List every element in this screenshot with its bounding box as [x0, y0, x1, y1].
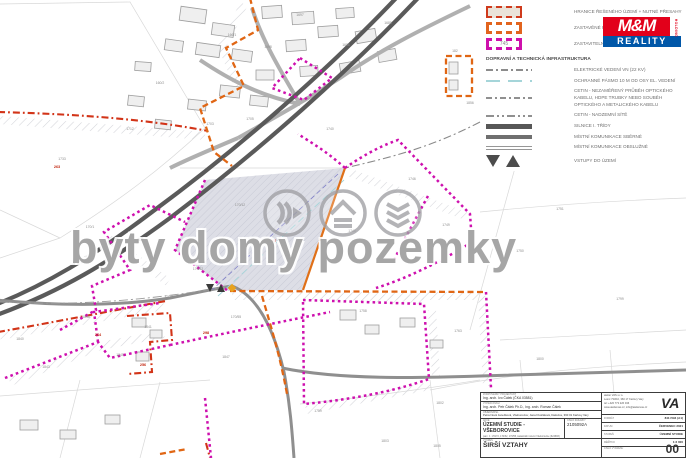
legend-label: ELEKTRICKÉ VEDENÍ VN (22 kV) — [574, 67, 684, 74]
parcel-number-label: 1763 — [454, 329, 462, 333]
parcel-number-label: 1846 — [82, 315, 90, 319]
triangle-up-icon — [506, 155, 520, 167]
parcel-number-label: 170/72 — [165, 295, 175, 299]
legend-label: CETIN - NADZEMNÍ SÍTĚ — [574, 112, 684, 119]
field-label: FORMÁT — [604, 417, 614, 420]
mm-reality-logo: M&M HOLDING REALITY — [603, 17, 681, 47]
zone-code-label: 264 — [95, 333, 102, 337]
project-title-cell: AKCE ÚZEMNÍ STUDIE - VŠEBOROVICE parc. č… — [481, 419, 565, 438]
parcel-number-label: 1685 — [384, 21, 392, 25]
watermark-text: byty domy pozemky — [70, 222, 517, 274]
boundary-swatch-icon — [486, 6, 522, 18]
field-label: DATUM — [604, 425, 612, 428]
service-road-swatch-icon — [486, 146, 532, 150]
legend-item-service-road: MÍSTNÍ KOMUNIKACE OBSLUŽNÉ — [486, 144, 684, 151]
parcel-number-label: 1758 — [359, 309, 367, 313]
parcel-number-label: 1843 — [42, 365, 50, 369]
sheet-number-cell: ČÍSLO VÝKRESU 00 — [602, 447, 685, 457]
legend-label: VSTUPY DO ÚZEMÍ — [574, 158, 684, 165]
company-logo: VA — [661, 393, 685, 414]
zone-code-label: 263 — [54, 165, 60, 169]
project-row: AKCE ÚZEMNÍ STUDIE - VŠEBOROVICE parc. č… — [481, 419, 601, 439]
authors-field: VYPRACOVALI Ing. arch. Petr Čálek Ph.D.,… — [481, 402, 601, 411]
order-number: 2105092A — [567, 422, 599, 428]
logo-holding-text: HOLDING — [674, 19, 678, 37]
field-value: ČERVENEC 2021 — [659, 425, 683, 429]
drawing-name-cell: VÝKRES ŠIRŠÍ VZTAHY — [481, 439, 601, 457]
legend-label: SILNICE I. TŘÍDY — [574, 123, 684, 130]
parcel-number-label: 1799 — [616, 297, 624, 301]
parcel-number-label: 1847 — [222, 355, 230, 359]
cetin-overhead-swatch-icon — [486, 115, 532, 117]
urban-study-plan-page: { "colors":{"magenta":"#ce10ae","orange"… — [0, 0, 686, 458]
field-label: STUPEŇ — [604, 433, 614, 436]
order-number-cell: ČÍSLO ZAKÁZKY 2105092A — [565, 419, 601, 438]
parcel-number-label: 1802 — [436, 401, 444, 405]
protection-zone-swatch-icon — [486, 80, 532, 82]
parcel-number-label: 1840 — [16, 337, 24, 341]
legend-label: HRANICE ŘEŠENÉHO ÚZEMÍ + NUTNÉ PŘESAHY — [574, 9, 684, 16]
parcel-number-label: 1740 — [326, 127, 334, 131]
legend-item-power-line: ELEKTRICKÉ VEDENÍ VN (22 kV) — [486, 67, 684, 74]
power-line-swatch-icon — [486, 69, 532, 71]
company-info: atelier VAS s.r.o. Lesní 733/10, 360 17 … — [602, 393, 661, 414]
parcel-number-label: 1746 — [408, 177, 416, 181]
legend-label: CETIN - NEZAMĚŘENÝ PRŮBĚH OPTICKÉHO KABE… — [574, 88, 684, 108]
parcel-number-label: 1686 — [342, 43, 350, 47]
parcel-number-label: 170/55 — [231, 315, 241, 319]
legend-item-collector-road: MÍSTNÍ KOMUNIKACE SBĚRNÉ — [486, 134, 684, 141]
legend-section-title: DOPRAVNÍ A TECHNICKÁ INFRASTRUKTURA — [486, 57, 684, 62]
parcel-number-label: 1759 — [314, 409, 322, 413]
company-cell: atelier VAS s.r.o. Lesní 733/10, 360 17 … — [602, 393, 685, 415]
zone-code-label: 298 — [203, 331, 209, 335]
field-value: Ing. arch. Petr Čálek Ph.D., Ing. arch. … — [483, 405, 599, 409]
responsible-designer-field: ZODPOVĚDNÝ PROJEKTANT Ing. arch. Ivo Čál… — [481, 393, 601, 402]
field-label: MĚŘÍTKO — [604, 441, 615, 444]
stage-field: STUPEŇ ÚZEMNÍ STUDIE — [602, 431, 685, 439]
parcel-number-label: 1750 — [516, 249, 524, 253]
parcel-number-label: 1856 — [466, 101, 474, 105]
logo-mm-text: M&M — [603, 17, 670, 36]
field-value: 841×594 (A1) — [665, 417, 683, 421]
title-block-left: ZODPOVĚDNÝ PROJEKTANT Ing. arch. Ivo Čál… — [481, 393, 602, 457]
parcel-number-label: 1705 — [246, 117, 254, 121]
format-field: FORMÁT 841×594 (A1) — [602, 415, 685, 423]
parcel-number-label: 1698 — [264, 45, 272, 49]
entries-swatch-icon — [486, 155, 532, 167]
cetin-cable-swatch-icon — [486, 97, 532, 99]
project-subtitle: parc. č. 170/72, 170/52, 170/55, katastr… — [483, 435, 562, 438]
company-line: www.ateliervas.cz, info@ateliervas.cz — [604, 406, 661, 410]
triangle-down-icon — [486, 155, 500, 167]
parcel-number-label: 1712 — [126, 127, 134, 131]
date-field: DATUM ČERVENEC 2021 — [602, 423, 685, 431]
developable-swatch-icon: 745 — [486, 38, 522, 50]
parcel-number-label: 182 — [452, 49, 458, 53]
parcel-number-label: 1764 — [296, 369, 304, 373]
parcel-number-label: 1841 — [144, 325, 152, 329]
power-line-vn — [345, 122, 480, 168]
project-title: ÚZEMNÍ STUDIE - VŠEBOROVICE — [483, 422, 562, 435]
legend-label: MÍSTNÍ KOMUNIKACE OBSLUŽNÉ — [574, 144, 684, 151]
legend-item-protection-zone: OCHRANNÉ PÁSMO 10 m OD OSY EL. VEDENÍ — [486, 78, 684, 85]
parcel-number-label: 160/2 — [156, 81, 165, 85]
legend-item-cetin-cable: CETIN - NEZAMĚŘENÝ PRŮBĚH OPTICKÉHO KABE… — [486, 88, 684, 108]
field-value: Petra Nová Janečková, Všeborovice; Jana … — [483, 414, 599, 418]
sheet-number: 00 — [666, 442, 679, 456]
highway-swatch-icon — [486, 124, 532, 129]
title-block: ZODPOVĚDNÝ PROJEKTANT Ing. arch. Ivo Čál… — [480, 392, 686, 458]
parcel-number-label: 1733 — [58, 157, 66, 161]
parcel-number-label: 1697 — [296, 13, 304, 17]
legend-item-highway: SILNICE I. TŘÍDY — [486, 123, 684, 130]
logo-reality-text: REALITY — [603, 36, 681, 47]
client-field: OBJEDNATEL Petra Nová Janečková, Všeboro… — [481, 411, 601, 419]
collector-road-swatch-icon — [486, 135, 532, 139]
parcel-number-label: 166/1 — [228, 33, 237, 37]
legend-label: MÍSTNÍ KOMUNIKACE SBĚRNÉ — [574, 134, 684, 141]
logo-holding-strip: HOLDING — [670, 17, 681, 36]
parcel-number-label: 1703 — [206, 122, 214, 126]
title-block-right: atelier VAS s.r.o. Lesní 733/10, 360 17 … — [602, 393, 685, 457]
parcel-number-label: 170/12 — [235, 203, 245, 207]
parcel-number-label: 1751 — [556, 207, 564, 211]
builtup-swatch-icon — [486, 22, 522, 34]
field-value: Ing. arch. Ivo Čálek (ČKA 03581) — [483, 396, 599, 400]
drawing-name: ŠIRŠÍ VZTAHY — [483, 442, 599, 449]
legend-item-cetin-overhead: CETIN - NADZEMNÍ SÍTĚ — [486, 112, 684, 119]
zone-code-label: 256 — [140, 363, 146, 367]
legend-label: OCHRANNÉ PÁSMO 10 m OD OSY EL. VEDENÍ — [574, 78, 684, 85]
parcel-number-label: 1800 — [536, 357, 544, 361]
field-value: ÚZEMNÍ STUDIE — [660, 433, 683, 437]
parcel-number-label: 1845 — [116, 353, 124, 357]
legend-item-entries: VSTUPY DO ÚZEMÍ — [486, 155, 684, 167]
parcel-number-label: 1805 — [433, 444, 441, 448]
parcel-number-label: 1803 — [381, 439, 389, 443]
